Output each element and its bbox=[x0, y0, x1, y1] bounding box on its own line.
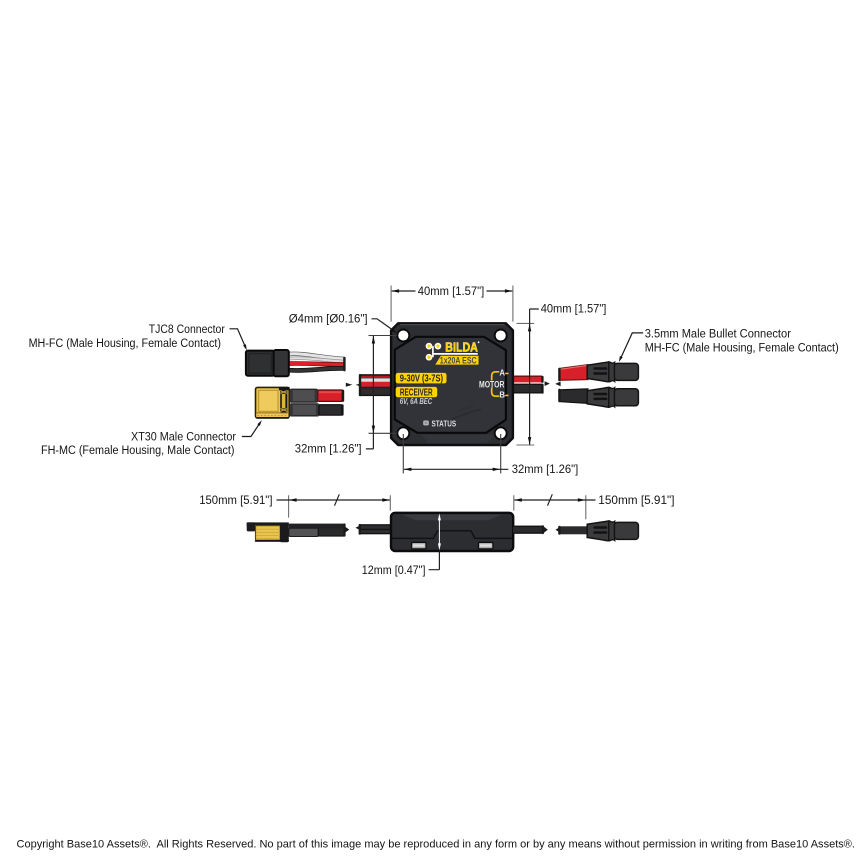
svg-text:FH-MC (Female Housing, Male Co: FH-MC (Female Housing, Male Contact) bbox=[41, 443, 235, 457]
svg-text:Copyright Base10 Assets®. All: Copyright Base10 Assets®. All Rights Res… bbox=[17, 838, 856, 850]
svg-text:1x20A ESC: 1x20A ESC bbox=[440, 355, 477, 365]
svg-text:MH-FC (Male Housing, Female Co: MH-FC (Male Housing, Female Contact) bbox=[645, 341, 839, 355]
svg-text:40mm [1.57"]: 40mm [1.57"] bbox=[418, 284, 484, 298]
svg-text:32mm [1.26"]: 32mm [1.26"] bbox=[512, 462, 579, 476]
svg-text:40mm [1.57"]: 40mm [1.57"] bbox=[541, 302, 607, 316]
svg-text:MH-FC (Male Housing, Female Co: MH-FC (Male Housing, Female Contact) bbox=[29, 336, 221, 350]
svg-text:STATUS: STATUS bbox=[432, 418, 457, 428]
svg-text:BILDA: BILDA bbox=[445, 340, 478, 354]
svg-text:6V, 6A BEC: 6V, 6A BEC bbox=[400, 397, 433, 406]
svg-text:Ø4mm [Ø0.16"]: Ø4mm [Ø0.16"] bbox=[289, 312, 368, 326]
svg-text:150mm [5.91"]: 150mm [5.91"] bbox=[199, 493, 272, 507]
svg-text:B: B bbox=[499, 390, 505, 399]
svg-text:A: A bbox=[499, 368, 505, 377]
svg-text:3.5mm Male Bullet Connector: 3.5mm Male Bullet Connector bbox=[645, 327, 791, 341]
svg-text:9-30V (3-7S): 9-30V (3-7S) bbox=[400, 374, 443, 385]
svg-text:XT30 Male Connector: XT30 Male Connector bbox=[131, 430, 236, 444]
svg-text:32mm [1.26"]: 32mm [1.26"] bbox=[295, 442, 362, 456]
svg-text:TJC8 Connector: TJC8 Connector bbox=[149, 322, 225, 336]
svg-text:12mm [0.47"]: 12mm [0.47"] bbox=[362, 563, 426, 577]
svg-text:150mm [5.91"]: 150mm [5.91"] bbox=[598, 493, 674, 507]
